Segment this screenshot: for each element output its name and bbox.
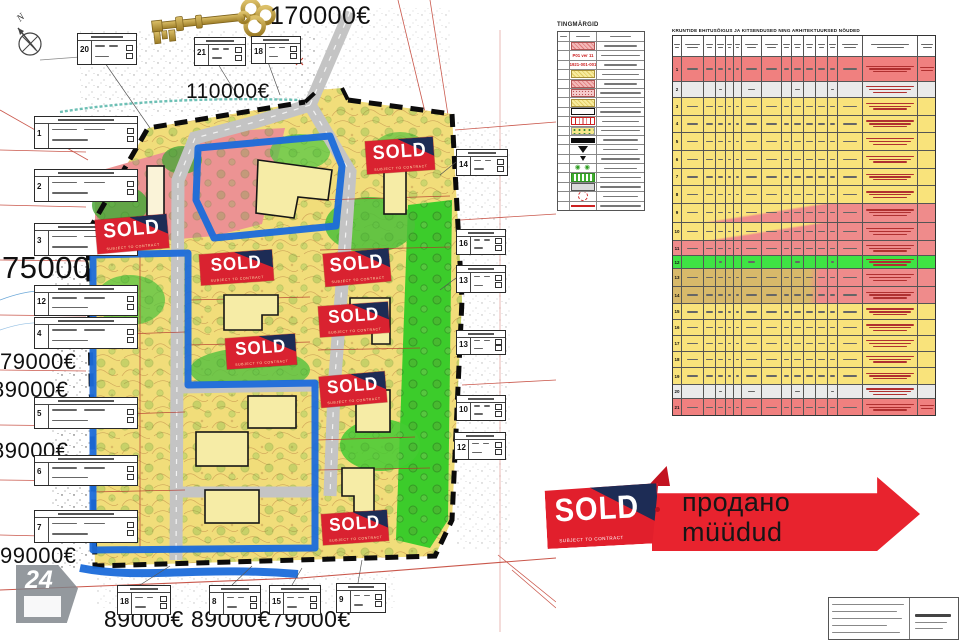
plot-info-table: 15 xyxy=(269,585,321,615)
plot-info-table: 1 xyxy=(34,116,138,149)
banner-fold xyxy=(648,466,670,486)
plot-info-table: 9 xyxy=(336,583,386,613)
legend-table: P01 ver 11 51921-001-0018 ◉ ◉ xyxy=(557,31,645,211)
row-number: 3 xyxy=(676,104,679,109)
sold-sign: SOLD SUBJECT TO CONTRACT xyxy=(545,483,662,549)
row-number: 7 xyxy=(676,174,679,179)
legend-row xyxy=(558,126,644,135)
plot-info-table: 18 xyxy=(251,36,301,64)
table-row-19: 19 xyxy=(673,367,935,385)
plot-info-table: 12 xyxy=(454,432,506,460)
legend-panel: TINGMÄRGID P01 ver 11 51921-001-0018 ◉ ◉ xyxy=(557,22,647,194)
legend-row xyxy=(558,135,644,144)
row-number: 5 xyxy=(676,139,679,144)
table-row-10: 10 xyxy=(673,222,935,241)
plot-number: 16 xyxy=(459,239,468,248)
watermark-hole xyxy=(24,596,61,617)
legend-row: ◉ ◉ xyxy=(558,163,644,172)
row-number: 12 xyxy=(674,260,679,265)
table-row-13: 13 xyxy=(673,268,935,286)
sold-badge: SOLD SUBJECT TO CONTRACT xyxy=(318,302,390,338)
pink-hatch-swatch-icon xyxy=(571,42,595,50)
legend-title: TINGMÄRGID xyxy=(557,22,647,28)
compass-label: N xyxy=(14,11,28,25)
yellow-hatch-icon xyxy=(571,70,595,78)
triangle-small-icon xyxy=(580,156,586,161)
legend-row xyxy=(558,201,644,210)
plot-number: 12 xyxy=(457,443,466,452)
legend-row xyxy=(558,107,644,116)
price-label: 170000€ xyxy=(270,2,371,31)
plot-number: 14 xyxy=(459,160,468,169)
table-title: KRUNTIDE EHITUSÕIGUS JA KITSENDUSED NING… xyxy=(672,28,936,33)
plot-info-table: 2 xyxy=(34,169,138,202)
plot-info-table: 21 xyxy=(194,37,246,66)
legend-row xyxy=(558,172,644,181)
row-number: 21 xyxy=(674,405,679,410)
sold-badge: SOLD SUBJECT TO CONTRACT xyxy=(323,248,392,287)
table-row-6: 6 xyxy=(673,150,935,168)
yellow-circles-icon xyxy=(571,127,595,135)
plot-info-table: 16 xyxy=(456,229,506,255)
table-row-18: 18 xyxy=(673,351,935,367)
table-row-9: 9 xyxy=(673,203,935,222)
red-ticks-icon xyxy=(571,117,595,125)
plot-number: 21 xyxy=(197,48,206,57)
plot-number: 1 xyxy=(37,129,41,138)
plot-info-table: 10 xyxy=(456,395,506,421)
plot-number: 5 xyxy=(37,409,41,418)
plot-number: 8 xyxy=(212,597,216,606)
legend-row: 51921-001-0018 xyxy=(558,60,644,69)
legend-row xyxy=(558,182,644,191)
sold-badge: SOLD SUBJECT TO CONTRACT xyxy=(365,137,435,175)
row-number: 17 xyxy=(674,341,679,346)
legend-row xyxy=(558,69,644,78)
badge-sold-label: SOLD xyxy=(95,215,169,245)
plot-number: 2 xyxy=(37,182,41,191)
plot-info-table: 18 xyxy=(117,585,171,615)
black-bar-icon xyxy=(571,138,595,143)
drawing-title-block xyxy=(828,597,959,640)
badge-sold-label: SOLD xyxy=(319,372,387,399)
compass-icon: N xyxy=(14,11,41,55)
plot-number: 13 xyxy=(459,340,468,349)
plot-info-table: 13 xyxy=(456,265,506,293)
plot-info-table: 13 xyxy=(456,330,506,355)
table-row-4: 4 xyxy=(673,115,935,133)
table-row-21: 21 xyxy=(673,398,935,415)
red-code-icon: P01 ver 11 xyxy=(572,53,593,58)
building-rights-table: KRUNTIDE EHITUSÕIGUS JA KITSENDUSED NING… xyxy=(672,28,936,416)
table-row-3: 3 xyxy=(673,97,935,115)
row-number: 13 xyxy=(674,275,679,280)
plot-number: 18 xyxy=(254,47,263,56)
triangle-down-icon xyxy=(578,146,588,153)
watermark-label: 24 xyxy=(25,566,53,595)
badge-sold-label: SOLD xyxy=(318,303,389,329)
row-number: 15 xyxy=(674,309,679,314)
table-row-5: 5 xyxy=(673,132,935,150)
plot-number: 20 xyxy=(80,45,89,54)
price-label: 79000€ xyxy=(0,349,76,375)
legend-row xyxy=(558,116,644,125)
legend-row xyxy=(558,97,644,106)
sold-badge: SOLD SUBJECT TO CONTRACT xyxy=(319,371,387,408)
green-rings-icon: ◉ ◉ xyxy=(572,165,594,171)
pink-dots-icon xyxy=(571,89,595,97)
plot-info-table: 7 xyxy=(34,510,138,543)
banner-dot xyxy=(655,507,660,512)
legend-row xyxy=(558,191,644,200)
table-row-20: 20 xyxy=(673,384,935,398)
table-grid: 123456789101112131415161718192021 xyxy=(672,35,936,416)
sign-sold-label: SOLD xyxy=(554,489,640,530)
plot-info-table: 5 xyxy=(34,397,138,429)
plot-info-table: 14 xyxy=(456,149,508,176)
legend-row xyxy=(558,41,644,50)
plot-number: 4 xyxy=(37,329,41,338)
row-number: 11 xyxy=(675,246,680,251)
gray-road-icon xyxy=(571,183,595,191)
row-number: 16 xyxy=(674,325,679,330)
row-number: 14 xyxy=(674,293,679,298)
pink-hatch-icon xyxy=(571,80,595,88)
black-outline-icon xyxy=(571,108,595,115)
table-row-2: 2 xyxy=(673,81,935,97)
plot-number: 10 xyxy=(459,405,468,414)
plot-info-table: 4 xyxy=(34,317,138,349)
plot-number: 9 xyxy=(339,595,343,604)
badge-sold-label: SOLD xyxy=(321,511,388,537)
yellow-hatch-icon xyxy=(571,99,595,107)
red-line-icon xyxy=(571,205,595,208)
table-row-17: 17 xyxy=(673,335,935,351)
plot-number: 6 xyxy=(37,467,41,476)
row-number: 4 xyxy=(676,121,679,126)
row-number: 18 xyxy=(674,357,679,362)
legend-row xyxy=(558,79,644,88)
plot-number: 15 xyxy=(272,597,281,606)
table-row-11: 11 xyxy=(673,240,935,255)
row-number: 9 xyxy=(676,210,679,215)
red-dashed-circle-icon xyxy=(578,192,588,200)
plot-number: 18 xyxy=(120,597,129,606)
badge-sold-label: SOLD xyxy=(199,251,273,278)
plot-number: 3 xyxy=(37,236,41,245)
listing-image: N 170000€110000€7500079000€89000€89000€9… xyxy=(0,0,960,640)
plot-info-table: 6 xyxy=(34,455,138,486)
plot-info-table: 12 xyxy=(34,285,138,316)
table-row-1: 1 xyxy=(673,56,935,81)
row-number: 2 xyxy=(676,87,679,92)
sold-banner-arrow: продано müüdud xyxy=(652,477,920,551)
table-row-16: 16 xyxy=(673,319,935,335)
plot-number: 7 xyxy=(37,523,41,532)
plot-info-table: 20 xyxy=(77,33,137,65)
table-row-14: 14 xyxy=(673,286,935,304)
sign-subject-label: SUBJECT TO CONTRACT xyxy=(559,535,624,543)
red-code-icon: 51921-001-0018 xyxy=(569,62,596,67)
green-stripes-icon xyxy=(571,173,595,181)
sold-badge: SOLD SUBJECT TO CONTRACT xyxy=(199,249,274,285)
row-number: 20 xyxy=(674,389,679,394)
sold-badge: SOLD SUBJECT TO CONTRACT xyxy=(225,334,297,370)
badge-sold-label: SOLD xyxy=(323,249,391,277)
row-number: 1 xyxy=(676,67,679,72)
row-number: 6 xyxy=(676,157,679,162)
table-row-12: 12 xyxy=(673,255,935,268)
banner-text-et: müüdud xyxy=(682,517,783,548)
badge-sold-label: SOLD xyxy=(225,335,296,361)
row-number: 10 xyxy=(674,229,679,234)
sold-badge: SOLD SUBJECT TO CONTRACT xyxy=(95,214,170,254)
legend-row xyxy=(558,154,644,163)
banner-text-ru: продано xyxy=(682,487,790,518)
table-row-8: 8 xyxy=(673,185,935,203)
plot-number: 13 xyxy=(459,276,468,285)
row-number: 8 xyxy=(676,192,679,197)
row-number: 19 xyxy=(674,374,679,379)
plot-number: 12 xyxy=(37,297,46,306)
legend-row xyxy=(558,144,644,153)
plot-info-table: 8 xyxy=(209,585,261,615)
price-label: 110000€ xyxy=(186,80,270,104)
sold-badge: SOLD SUBJECT TO CONTRACT xyxy=(321,510,389,546)
table-row-15: 15 xyxy=(673,303,935,319)
legend-row: P01 ver 11 xyxy=(558,50,644,59)
legend-row xyxy=(558,88,644,97)
badge-sold-label: SOLD xyxy=(365,138,434,165)
table-row-7: 7 xyxy=(673,168,935,186)
